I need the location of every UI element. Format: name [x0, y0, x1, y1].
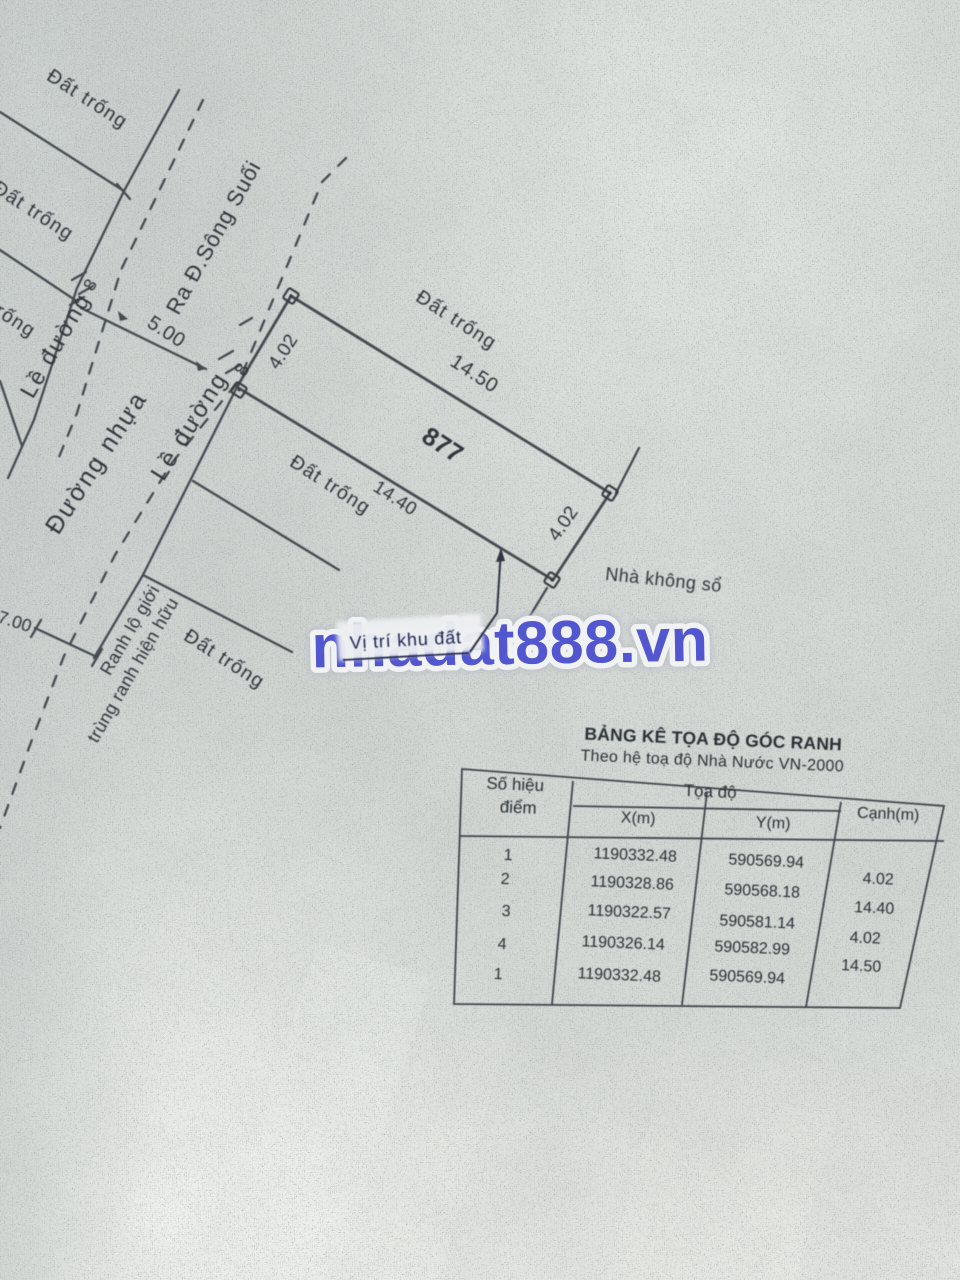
svg-text:1190332.48: 1190332.48	[593, 845, 677, 865]
svg-text:14.50: 14.50	[841, 957, 882, 976]
svg-text:4.02: 4.02	[862, 870, 894, 888]
svg-text:1: 1	[503, 847, 513, 864]
svg-text:4.02: 4.02	[849, 929, 881, 947]
svg-text:590581.14: 590581.14	[719, 912, 795, 932]
svg-text:2: 2	[500, 871, 510, 888]
svg-text:1: 1	[493, 966, 503, 983]
svg-text:điểm: điểm	[499, 797, 537, 818]
svg-text:14.40: 14.40	[854, 899, 895, 918]
svg-text:Số hiệu: Số hiệu	[486, 774, 544, 795]
svg-text:X(m): X(m)	[621, 809, 656, 827]
svg-text:1190332.48: 1190332.48	[577, 965, 661, 985]
svg-text:1190322.57: 1190322.57	[587, 902, 671, 922]
svg-text:Y(m): Y(m)	[756, 814, 791, 832]
svg-text:590582.99: 590582.99	[714, 938, 790, 958]
svg-text:590569.94: 590569.94	[709, 967, 785, 987]
svg-text:Cạnh(m): Cạnh(m)	[857, 805, 920, 825]
svg-text:1190326.14: 1190326.14	[581, 933, 665, 953]
svg-text:590569.94: 590569.94	[728, 851, 804, 871]
svg-text:3: 3	[501, 903, 511, 920]
svg-text:1190328.86: 1190328.86	[590, 873, 674, 893]
svg-text:590568.18: 590568.18	[724, 881, 800, 901]
svg-text:Tọa độ: Tọa độ	[683, 781, 737, 802]
svg-text:4: 4	[497, 936, 507, 953]
